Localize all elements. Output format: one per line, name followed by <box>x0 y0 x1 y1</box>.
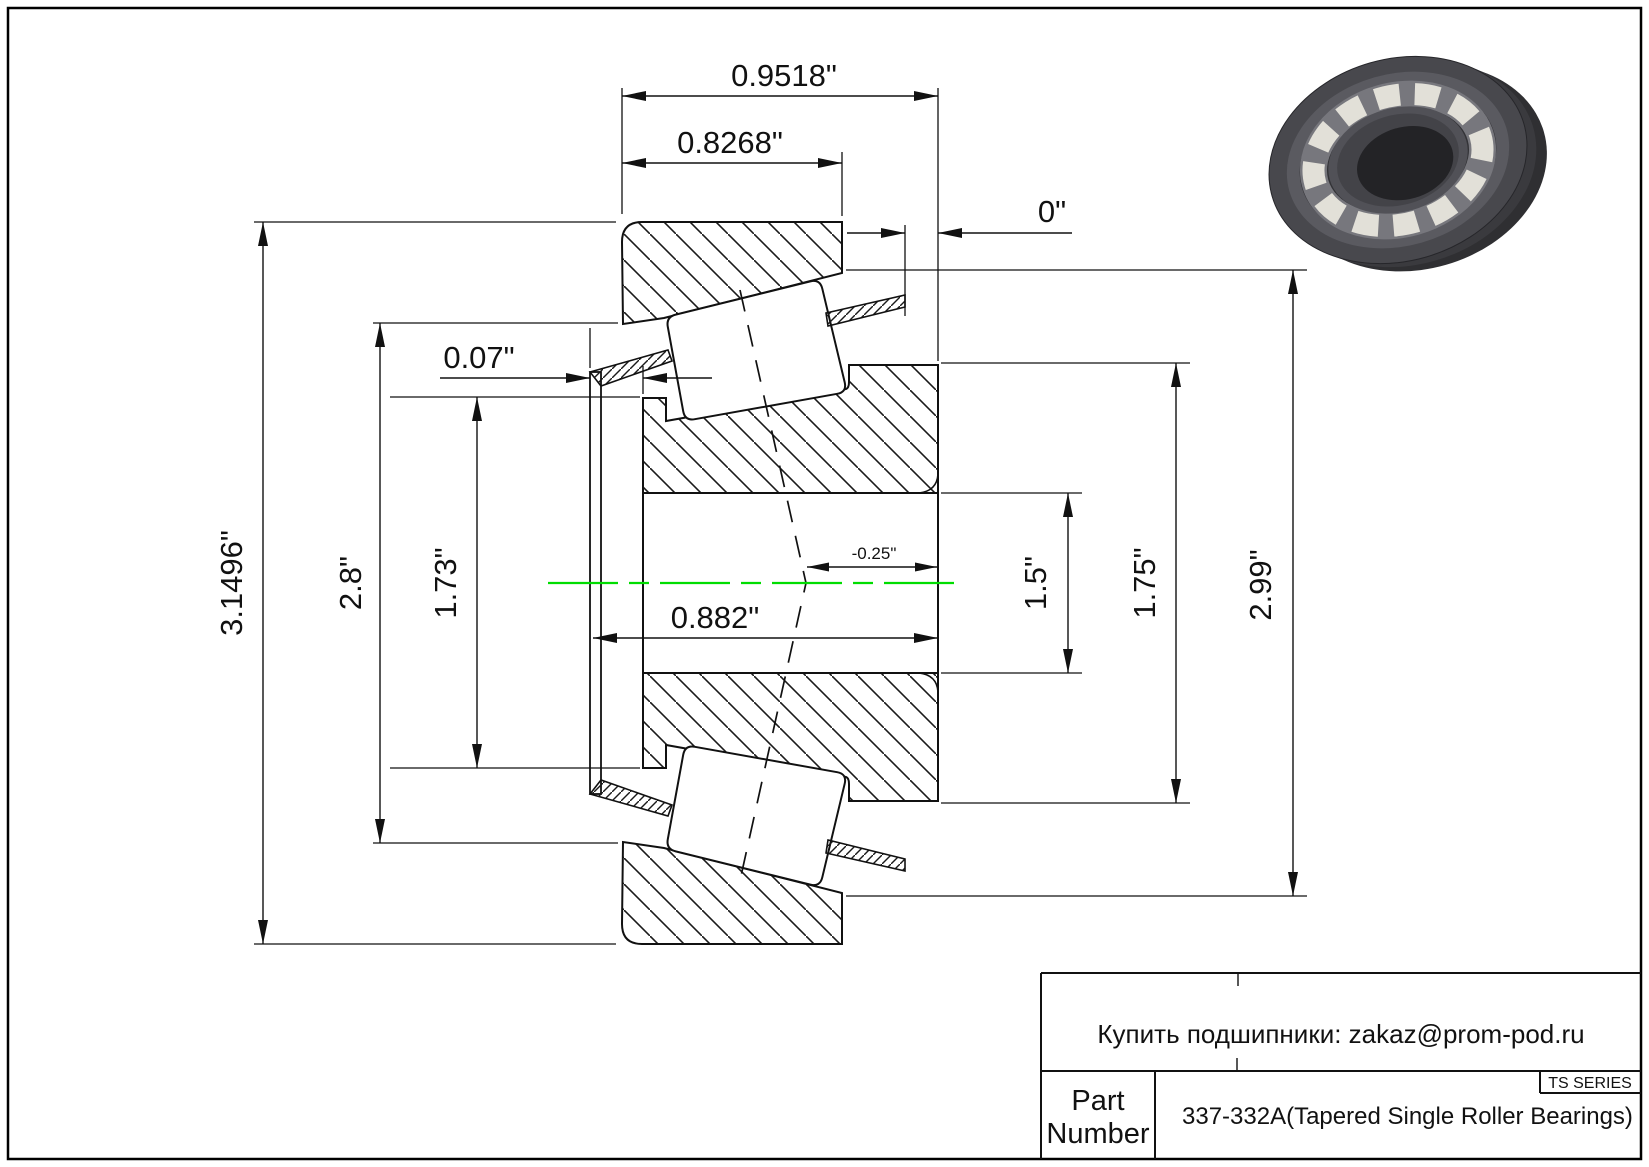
dim-backface-standout: 0" <box>1038 194 1066 229</box>
dim-total-width: 0.9518" <box>731 58 837 93</box>
drawing-page: 0.9518" 0.8268" 0" 0.07" 0.882" -0.25" 3… <box>0 0 1649 1167</box>
bearing-3d-render <box>1244 22 1571 306</box>
dim-race-large-diameter: 2.99" <box>1243 549 1278 620</box>
part-label-line1: Part <box>1071 1085 1124 1117</box>
dim-cage-small-end-diameter: 1.73" <box>428 547 463 618</box>
cage-sliver-lower-right <box>826 840 905 871</box>
dim-bore-diameter: 1.5" <box>1018 556 1053 610</box>
bearing-drawing-canvas: 0.9518" 0.8268" 0" 0.07" 0.882" -0.25" 3… <box>0 0 1649 1167</box>
part-number-text: 337-332A(Tapered Single Roller Bearings) <box>1182 1103 1633 1130</box>
dim-outer-diameter: 3.1496" <box>214 530 249 636</box>
cage-sliver-lower-left <box>590 780 672 816</box>
dim-cone-front-rib-diameter: 1.75" <box>1127 547 1162 618</box>
supplier-contact-text: Купить подшипники: zakaz@prom-pod.ru <box>1097 1019 1584 1049</box>
dim-left-shoulder-diameter: 2.8" <box>333 556 368 610</box>
dim-cone-width: 0.882" <box>671 600 760 635</box>
cage-sliver-upper-right <box>826 295 905 326</box>
series-badge: TS SERIES <box>1548 1075 1632 1092</box>
dim-cage-front-standout: 0.07" <box>443 340 514 375</box>
dim-cup-width: 0.8268" <box>677 125 783 160</box>
part-label-line2: Number <box>1046 1118 1149 1150</box>
dim-apex-offset: -0.25" <box>852 544 897 563</box>
